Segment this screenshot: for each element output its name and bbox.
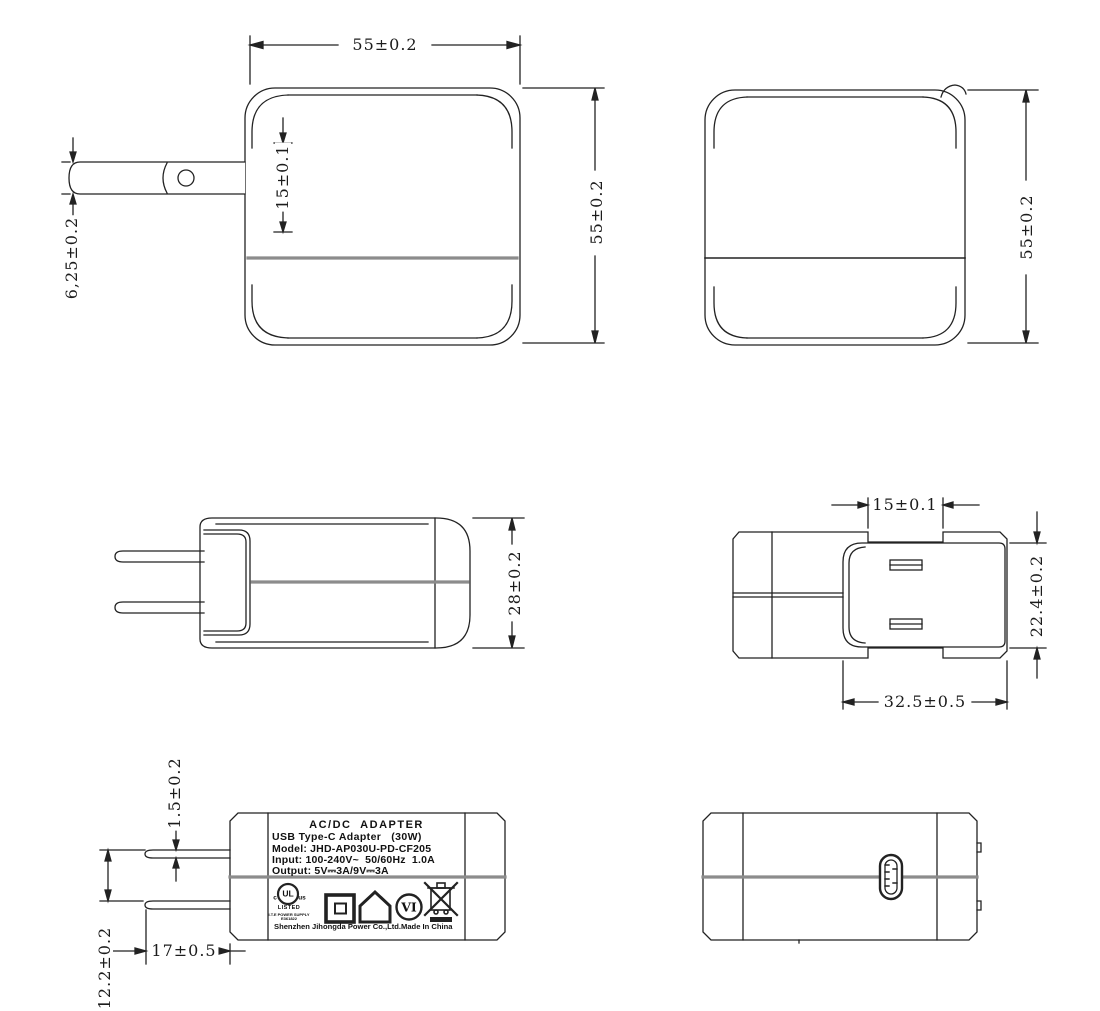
blade-length-dimension: 17±0.5 [149,943,218,959]
technical-drawing-canvas: 55±0.2 15±0.1 6,25±0.2 55±0.2 55±0.2 28±… [0,0,1100,1011]
top-platform-width-dimension: 22.4±0.2 [1029,553,1045,639]
top-platform-length-dimension: 32.5±0.5 [882,694,968,710]
top-blade-span-dimension: 15±0.1 [870,497,939,513]
top-view-drawing [733,498,1046,709]
label-subtitle: USB Type-C Adapter (30W) [272,832,422,843]
plug-blade [145,901,230,909]
front-slot-dimension: 15±0.1 [275,142,291,211]
front-height-dimension: 55±0.2 [589,177,605,246]
front-width-dimension: 55±0.2 [350,37,419,53]
adapter-body-rear [705,90,965,345]
rear-view-drawing [705,85,1038,345]
plug-blade [145,850,230,858]
side-view-drawing [115,518,524,648]
ul-file-number: E361822 [281,917,297,921]
side-depth-dimension: 28±0.2 [507,548,523,617]
bottom-view-drawing [703,813,981,943]
ul-suffix-text: us [298,896,306,903]
adapter-body-top [733,532,1007,658]
label-title: AC/DC ADAPTER [268,820,465,832]
front-view-drawing [62,36,604,345]
blade-gap-dimension: 12.2±0.2 [97,925,113,1011]
label-manufacturer: Shenzhen Jihongda Power Co.,Ltd. [274,923,401,931]
ul-prefix-text: c [273,896,277,903]
label-origin: Made In China [401,923,452,931]
plug-blade [69,162,245,194]
rear-height-dimension: 55±0.2 [1019,192,1035,261]
label-output: Output: 5V⎓3A/9V⎓3A [272,866,389,877]
plug-blade [115,551,204,562]
adapter-body-front [245,88,520,345]
front-blade-dimension: 6,25±0.2 [64,215,80,301]
blade-thickness-dimension: 1.5±0.2 [167,755,183,830]
ul-monogram-text: UL [282,890,293,899]
efficiency-vi-text: VI [401,900,417,913]
usb-c-port [880,855,902,899]
plug-blade [115,602,204,613]
